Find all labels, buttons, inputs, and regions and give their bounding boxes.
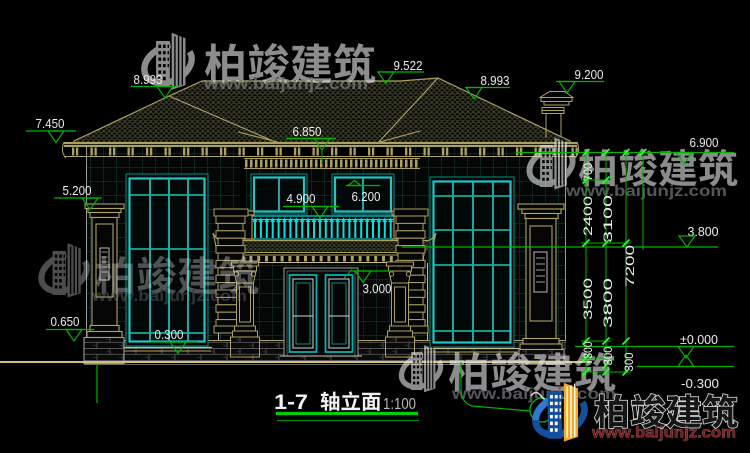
svg-text:700: 700 (583, 163, 595, 181)
svg-text:300: 300 (624, 353, 636, 372)
svg-text:3100: 3100 (603, 195, 615, 243)
svg-text:0.300: 0.300 (155, 328, 184, 342)
svg-text:www.baijunjz.com: www.baijunjz.com (591, 425, 736, 442)
svg-text:9.200: 9.200 (575, 68, 604, 82)
svg-text:1-7: 1-7 (274, 391, 308, 414)
svg-text:-0.300: -0.300 (681, 377, 719, 391)
svg-text:7200: 7200 (625, 245, 637, 287)
svg-text:300: 300 (603, 347, 615, 366)
svg-text:3500: 3500 (583, 278, 595, 320)
svg-text:1:100: 1:100 (383, 396, 416, 413)
svg-text:www.baijunjz.com: www.baijunjz.com (203, 75, 368, 93)
svg-text:6.850: 6.850 (293, 125, 322, 139)
svg-text:9.522: 9.522 (394, 59, 423, 73)
svg-text:www.baijunjz.com: www.baijunjz.com (451, 386, 616, 403)
svg-text:7.450: 7.450 (36, 117, 65, 131)
svg-text:5.200: 5.200 (63, 184, 92, 198)
svg-text:±0.000: ±0.000 (680, 333, 718, 347)
svg-text:www.baijunjz.com: www.baijunjz.com (91, 288, 247, 305)
svg-text:2400: 2400 (583, 196, 595, 236)
svg-text:3800: 3800 (603, 278, 615, 328)
svg-text:6.200: 6.200 (352, 190, 381, 204)
svg-text:3.000: 3.000 (363, 282, 392, 296)
svg-text:8.993: 8.993 (481, 74, 510, 88)
svg-text:300: 300 (583, 342, 595, 359)
svg-text:4.900: 4.900 (287, 192, 316, 206)
svg-text:8.993: 8.993 (134, 73, 163, 87)
svg-text:6.900: 6.900 (690, 136, 719, 150)
svg-text:0.650: 0.650 (51, 315, 80, 329)
svg-text:3.800: 3.800 (688, 225, 719, 239)
